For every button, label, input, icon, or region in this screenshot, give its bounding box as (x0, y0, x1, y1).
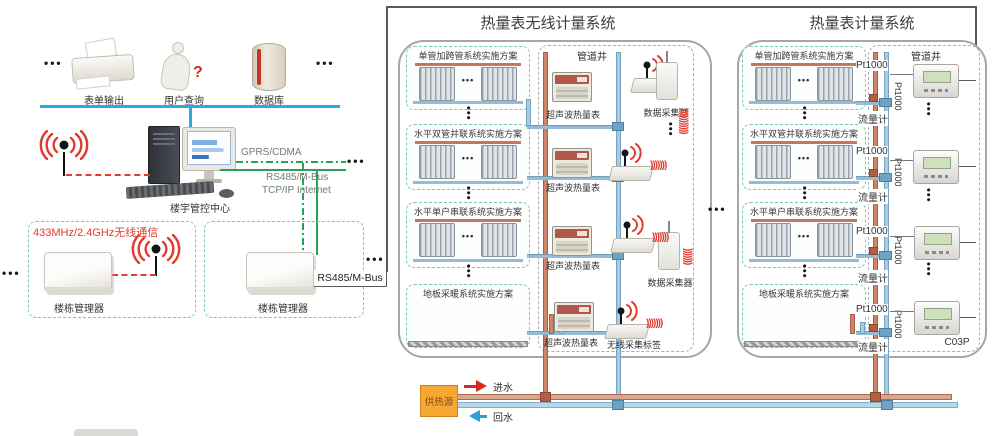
sensor-wire (890, 74, 914, 75)
signal-coil: ))))))))))) (678, 108, 689, 134)
flow-meter-fitting (879, 173, 892, 182)
return-arrow (474, 415, 487, 418)
flow-meter-label: 流量计 (858, 111, 888, 126)
calculator-icon (913, 64, 959, 98)
ultrasonic-meter-icon (552, 148, 592, 178)
scheme-label: 水平单户串联系统实施方案 (407, 205, 529, 218)
floor-heating-bar (744, 341, 864, 347)
radiator-icon (481, 67, 517, 101)
return-branch (527, 125, 619, 129)
wireless-transmitter-icon (608, 166, 654, 181)
scheme-box-2: 水平双管并联系统实施方案 ••• (742, 124, 866, 190)
ultrasonic-meter-label: 超声波热量表 (542, 181, 604, 194)
management-center-label: 楼宇管控中心 (152, 200, 248, 215)
ellipsis-vertical: ••• (922, 102, 934, 117)
scheme-label: 水平双管并联系统实施方案 (407, 127, 529, 140)
monitor-stand (204, 171, 214, 179)
ultrasonic-meter-icon (552, 72, 592, 102)
gprs-label: GPRS/CDMA (241, 147, 302, 158)
pt1000-label-vertical: Pt1000 (893, 158, 903, 187)
ellipsis-vertical: ••• (462, 264, 474, 279)
ellipsis: ••• (316, 56, 335, 70)
sensor-wire (890, 311, 914, 312)
signal-coil: ))))))) (650, 160, 666, 171)
ultrasonic-meter-label: 超声波热量表 (542, 108, 604, 121)
radiator-group: ••• (413, 62, 523, 104)
ellipsis-vertical: ••• (922, 188, 934, 203)
scheme-label: 地板采暖系统实施方案 (743, 287, 865, 300)
device-model-label: C03P (934, 337, 980, 348)
signal-antenna-icon (618, 142, 646, 166)
rs485-label: RS485/M-Bus (266, 172, 328, 183)
ellipsis: ••• (708, 202, 727, 216)
pipe-fitting (881, 400, 893, 410)
building-manager-1-label: 楼栋管理器 (48, 300, 110, 315)
signal-coil: ))))))) (652, 232, 668, 243)
question-mark: ? (193, 64, 203, 82)
signal-antenna-icon (614, 300, 642, 324)
ultrasonic-meter-icon (554, 302, 594, 332)
rs485-line (220, 169, 346, 171)
flow-meter-label: 流量计 (858, 270, 888, 285)
return-branch-stub (526, 99, 531, 127)
wireless-link-line (66, 174, 150, 176)
scheme-box-3: 水平单户串联系统实施方案 ••• (406, 202, 530, 268)
keyboard-icon (126, 181, 215, 199)
ultrasonic-meter-icon (552, 226, 592, 256)
building-manager-device (44, 252, 112, 292)
monitor-screen (187, 131, 231, 165)
mbus-line-top (386, 6, 976, 8)
scheme-box-3: 水平单户串联系统实施方案 ••• (742, 202, 866, 268)
radiator-icon (481, 145, 517, 179)
calculator-icon (913, 150, 959, 184)
pipe-fitting (869, 169, 878, 177)
gprs-line (236, 161, 346, 163)
radiator-icon (817, 223, 853, 257)
sensor-wire (890, 160, 914, 161)
scheme-label: 水平双管并联系统实施方案 (743, 127, 865, 140)
pt1000-label: Pt1000 (856, 304, 888, 315)
ellipsis: ••• (44, 56, 63, 70)
pipe-fitting (869, 324, 878, 332)
ellipsis-vertical: ••• (798, 264, 810, 279)
scheme-box-4: 地板采暖系统实施方案 (742, 284, 866, 348)
flow-meter-fitting (879, 328, 892, 337)
supply-arrow-head (476, 380, 493, 392)
system-diagram: ••• ••• 表单输出 ? 用户查询 数据库 楼宇管控中心 GPRS/CDMA… (0, 0, 1000, 436)
radiator-group: ••• (413, 140, 523, 184)
radiator-group: ••• (749, 62, 859, 104)
scheme-box-1: 单管加跨管系统实施方案 ••• (742, 46, 866, 110)
tcpip-label: TCP/IP Internet (262, 185, 331, 196)
pipe-fitting (540, 392, 551, 402)
bus-wire (959, 166, 976, 167)
flow-meter-label: 流量计 (858, 189, 888, 204)
database-stripe (257, 49, 261, 85)
wireless-tag-icon (604, 324, 650, 339)
pipe-fitting (870, 392, 881, 402)
pt1000-label: Pt1000 (856, 60, 888, 71)
pt1000-label-vertical: Pt1000 (893, 310, 903, 339)
radiator-icon (817, 145, 853, 179)
scheme-label: 地板采暖系统实施方案 (407, 287, 529, 300)
panel-wired-title: 热量表计量系统 (737, 12, 987, 33)
flow-meter-fitting (879, 98, 892, 107)
mouse-icon (219, 189, 234, 198)
mbus-line-left (386, 6, 388, 272)
pipe-fitting (869, 247, 878, 255)
radiator-icon (481, 223, 517, 257)
building-manager-2-label: 楼栋管理器 (252, 300, 314, 315)
sensor-wire (890, 236, 914, 237)
pipe-fitting (869, 94, 878, 102)
scheme-box-1: 单管加跨管系统实施方案 ••• (406, 46, 530, 110)
return-label: 回水 (493, 409, 513, 424)
user-body-icon (160, 52, 193, 92)
antenna-pole (63, 152, 65, 176)
calculator-icon (914, 301, 960, 335)
radiator-icon (817, 67, 853, 101)
bus-wire (959, 80, 976, 81)
signal-antenna-icon (620, 214, 648, 238)
pt1000-label-vertical: Pt1000 (893, 82, 903, 111)
floor-heating-bar (408, 341, 528, 347)
mbus-label: RS485/M-Bus (314, 270, 387, 287)
data-collector-label: 数据采集器 (640, 276, 700, 289)
flow-meter-label: 流量计 (858, 339, 888, 354)
panel-wireless-title: 热量表无线计量系统 (398, 12, 698, 33)
scheme-box-4: 地板采暖系统实施方案 (406, 284, 530, 348)
ellipsis: ••• (347, 154, 366, 168)
signal-coil: ))))))) (682, 248, 693, 264)
calculator-icon (914, 226, 960, 260)
user-head-icon (172, 42, 184, 54)
floor-supply-stub (850, 314, 855, 334)
ultrasonic-meter-label: 超声波热量表 (542, 259, 604, 272)
pt1000-label-vertical: Pt1000 (893, 236, 903, 265)
antenna-pole (155, 256, 157, 276)
heat-source-box: 供热源 (420, 385, 458, 417)
signal-coil: ))))))) (646, 318, 662, 329)
ultrasonic-meter-label: 超声波热量表 (540, 336, 602, 349)
ellipsis-vertical: ••• (798, 106, 810, 121)
radiator-group: ••• (749, 140, 859, 184)
scheme-box-2: 水平双管并联系统实施方案 ••• (406, 124, 530, 190)
pipe-fitting (612, 400, 624, 410)
printer-output-icon (76, 75, 111, 89)
ellipsis-vertical: ••• (798, 186, 810, 201)
ellipsis-vertical: ••• (664, 122, 676, 137)
scheme-label: 水平单户串联系统实施方案 (743, 205, 865, 218)
supply-label: 进水 (493, 379, 513, 394)
radiator-group: ••• (749, 218, 859, 262)
bus-wire (960, 242, 976, 243)
floor-return-stub (860, 322, 865, 334)
bus-wire (960, 317, 976, 318)
ellipsis: ••• (366, 252, 385, 266)
scheme-label: 单管加跨管系统实施方案 (743, 49, 865, 62)
flow-meter-fitting (879, 251, 892, 260)
building-manager-device (246, 252, 314, 292)
database-icon (252, 43, 286, 91)
pt1000-label: Pt1000 (856, 146, 888, 157)
cropped-shape (74, 429, 138, 436)
monitor-icon (182, 127, 236, 171)
wireless-transmitter-icon (610, 238, 656, 253)
computer-tower-icon (148, 126, 180, 184)
wireless-link-line (112, 274, 156, 276)
ellipsis-vertical: ••• (922, 262, 934, 277)
ellipsis-vertical: ••• (462, 106, 474, 121)
pt1000-label: Pt1000 (856, 226, 888, 237)
pipe-shaft-label: 管道井 (886, 48, 966, 63)
ellipsis: ••• (2, 266, 21, 280)
ellipsis-vertical: ••• (462, 186, 474, 201)
data-collector-icon (656, 62, 678, 100)
pipe-fitting (612, 122, 624, 131)
wireless-tag-label: 无线采集标签 (602, 338, 666, 351)
scheme-label: 单管加跨管系统实施方案 (407, 49, 529, 62)
radiator-group: ••• (413, 218, 523, 262)
